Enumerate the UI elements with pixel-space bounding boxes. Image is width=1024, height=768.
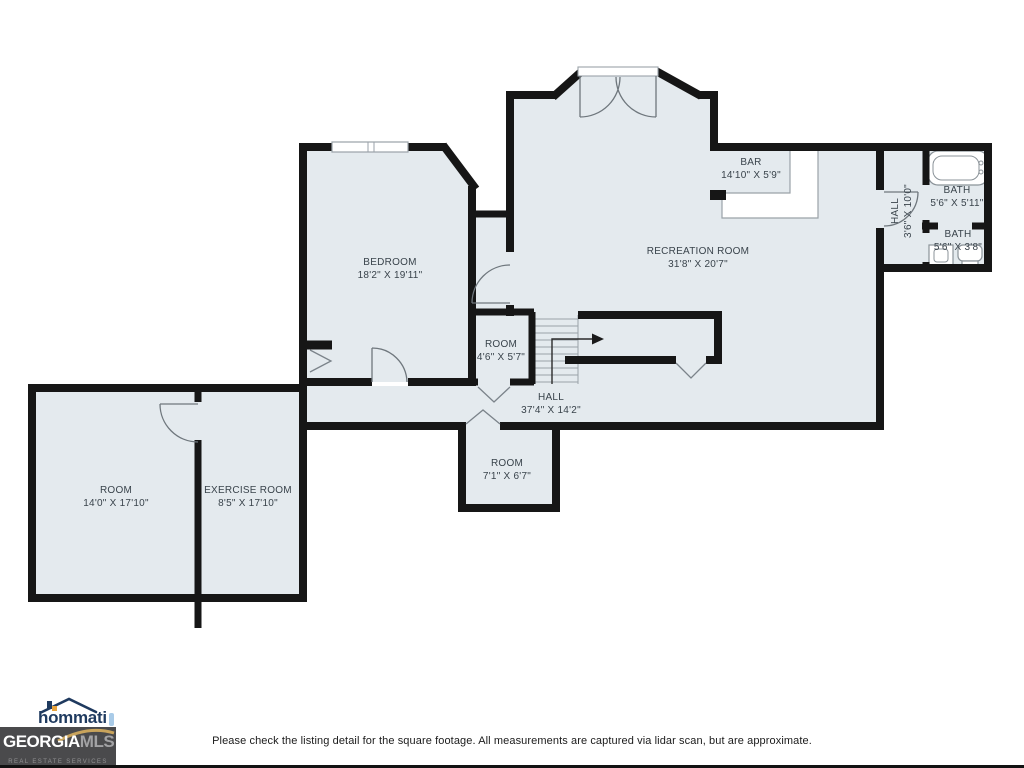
room-label-room-left: ROOM14'0" X 17'10" (83, 484, 149, 510)
room-label-exercise-room: EXERCISE ROOM8'5" X 17'10" (204, 484, 292, 510)
room-label-recreation-room: RECREATION ROOM31'8" X 20'7" (647, 245, 749, 271)
disclaimer-text: Please check the listing detail for the … (0, 735, 1024, 747)
room-label-room-small: ROOM4'6" X 5'7" (477, 338, 525, 364)
window-icon (332, 142, 408, 152)
hommati-wordmark: hommati (38, 708, 107, 728)
room-label-bath-1: BATH5'6" X 5'11" (930, 184, 983, 210)
floor-plan-page: BEDROOM18'2" X 19'11" RECREATION ROOM31'… (0, 0, 1024, 768)
floor-plan-drawing (0, 0, 1024, 768)
room-label-bath-2: BATH5'6" X 3'8" (934, 228, 982, 254)
room-label-bedroom: BEDROOM18'2" X 19'11" (358, 256, 423, 282)
georgia-mls-logo: GEORGIAMLS REAL ESTATE SERVICES (0, 727, 116, 768)
room-label-hall-vertical: HALL3'6" X 10'0" (889, 184, 915, 238)
room-label-room-7x6: ROOM7'1" X 6'7" (483, 457, 531, 483)
hommati-accent-bar (109, 713, 114, 726)
hommati-logo: hommati (36, 696, 116, 728)
room-label-hall-main: HALL37'4" X 14'2" (521, 391, 581, 417)
bathtub-icon (928, 151, 988, 185)
room-label-bar: BAR14'10" X 5'9" (721, 156, 781, 182)
